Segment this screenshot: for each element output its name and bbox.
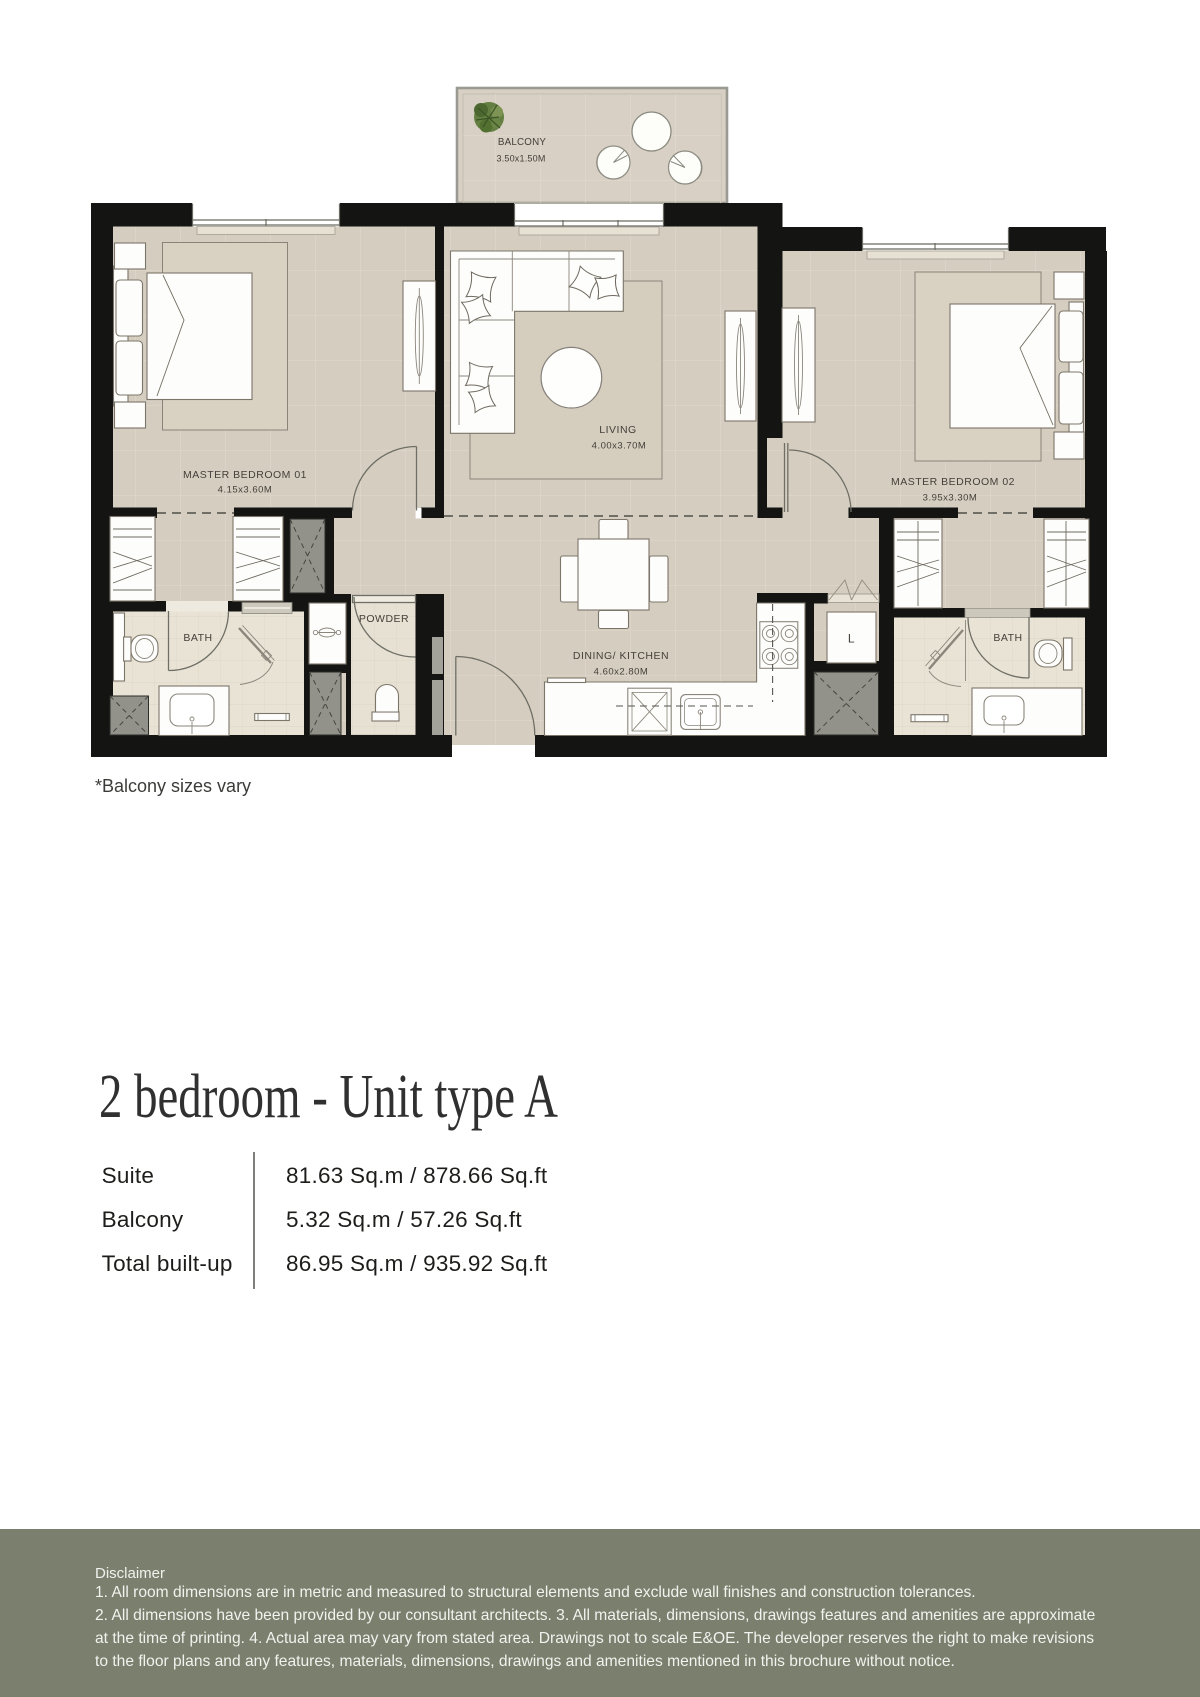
svg-text:MASTER BEDROOM 01: MASTER BEDROOM 01 — [183, 469, 307, 481]
svg-text:3.50x1.50M: 3.50x1.50M — [496, 154, 545, 164]
svg-text:POWDER: POWDER — [359, 613, 409, 625]
svg-text:3.95x3.30M: 3.95x3.30M — [923, 493, 978, 504]
svg-text:4.60x2.80M: 4.60x2.80M — [594, 667, 649, 678]
svg-text:BALCONY: BALCONY — [498, 137, 546, 148]
svg-text:DINING/ KITCHEN: DINING/ KITCHEN — [573, 650, 669, 662]
svg-text:MASTER BEDROOM 02: MASTER BEDROOM 02 — [891, 476, 1015, 488]
svg-text:LIVING: LIVING — [599, 424, 636, 436]
svg-text:BATH: BATH — [183, 632, 212, 644]
svg-text:4.00x3.70M: 4.00x3.70M — [592, 441, 647, 452]
svg-text:BATH: BATH — [993, 632, 1022, 644]
svg-text:4.15x3.60M: 4.15x3.60M — [218, 485, 273, 496]
svg-text:L: L — [848, 632, 855, 646]
